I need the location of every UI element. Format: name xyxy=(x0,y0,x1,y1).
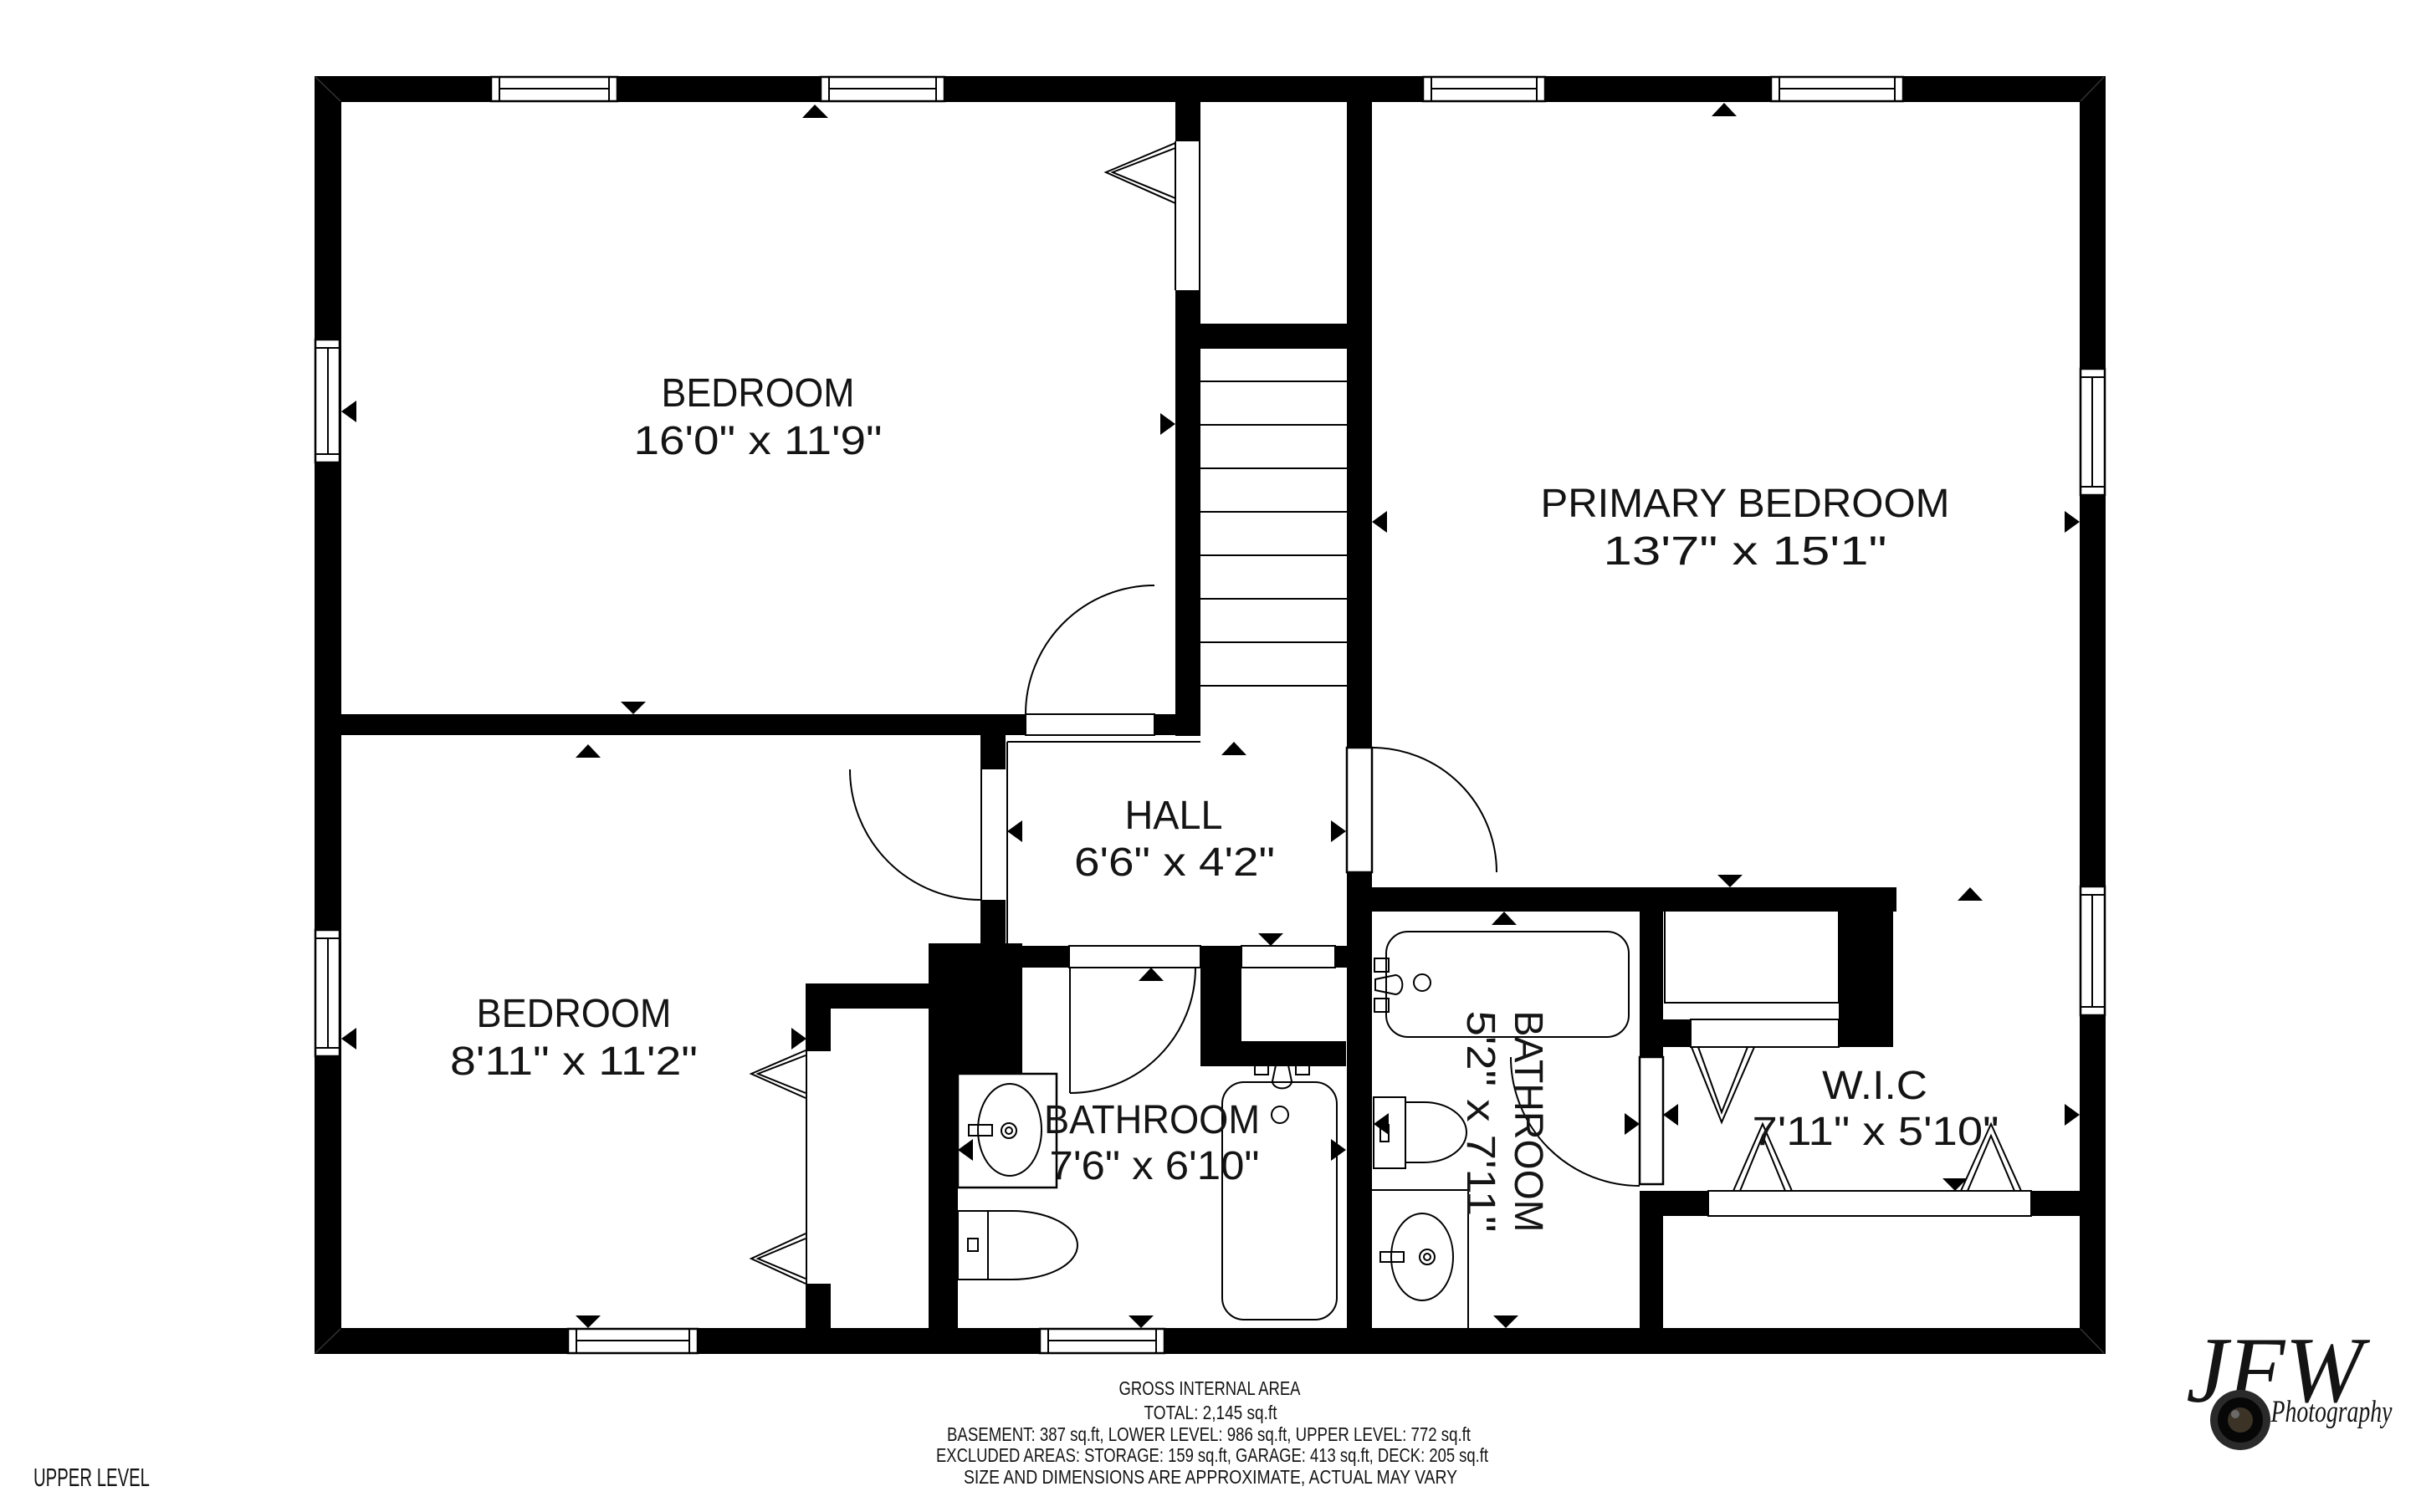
svg-text:6'6" x 4'2": 6'6" x 4'2" xyxy=(1074,840,1275,885)
svg-text:BEDROOM: BEDROOM xyxy=(662,371,855,416)
svg-text:SIZE AND DIMENSIONS ARE APPROX: SIZE AND DIMENSIONS ARE APPROXIMATE, ACT… xyxy=(964,1466,1457,1488)
svg-text:BEDROOM: BEDROOM xyxy=(477,992,672,1036)
svg-text:GROSS INTERNAL AREA: GROSS INTERNAL AREA xyxy=(1119,1377,1302,1399)
svg-text:UPPER LEVEL: UPPER LEVEL xyxy=(33,1463,150,1492)
svg-text:PRIMARY BEDROOM: PRIMARY BEDROOM xyxy=(1541,482,1950,526)
svg-text:5'2" x 7'11": 5'2" x 7'11" xyxy=(1458,1011,1502,1233)
svg-text:7'11" x 5'10": 7'11" x 5'10" xyxy=(1753,1110,1999,1154)
svg-text:7'6" x 6'10": 7'6" x 6'10" xyxy=(1050,1144,1260,1188)
svg-text:16'0" x 11'9": 16'0" x 11'9" xyxy=(634,419,883,463)
svg-text:HALL: HALL xyxy=(1125,794,1223,838)
svg-text:BATHROOM: BATHROOM xyxy=(1044,1098,1260,1142)
svg-text:W.I.C: W.I.C xyxy=(1822,1064,1927,1108)
svg-text:BASEMENT: 387 sq.ft, LOWER LEV: BASEMENT: 387 sq.ft, LOWER LEVEL: 986 sq… xyxy=(947,1423,1471,1445)
svg-text:Photography: Photography xyxy=(2270,1395,2393,1429)
svg-text:13'7" x 15'1": 13'7" x 15'1" xyxy=(1604,529,1887,574)
svg-text:BATHROOM: BATHROOM xyxy=(1506,1011,1550,1233)
svg-text:EXCLUDED AREAS: STORAGE: 159 s: EXCLUDED AREAS: STORAGE: 159 sq.ft, GARA… xyxy=(936,1444,1488,1466)
svg-text:8'11" x 11'2": 8'11" x 11'2" xyxy=(450,1039,698,1084)
svg-text:TOTAL: 2,145 sq.ft: TOTAL: 2,145 sq.ft xyxy=(1144,1402,1278,1423)
